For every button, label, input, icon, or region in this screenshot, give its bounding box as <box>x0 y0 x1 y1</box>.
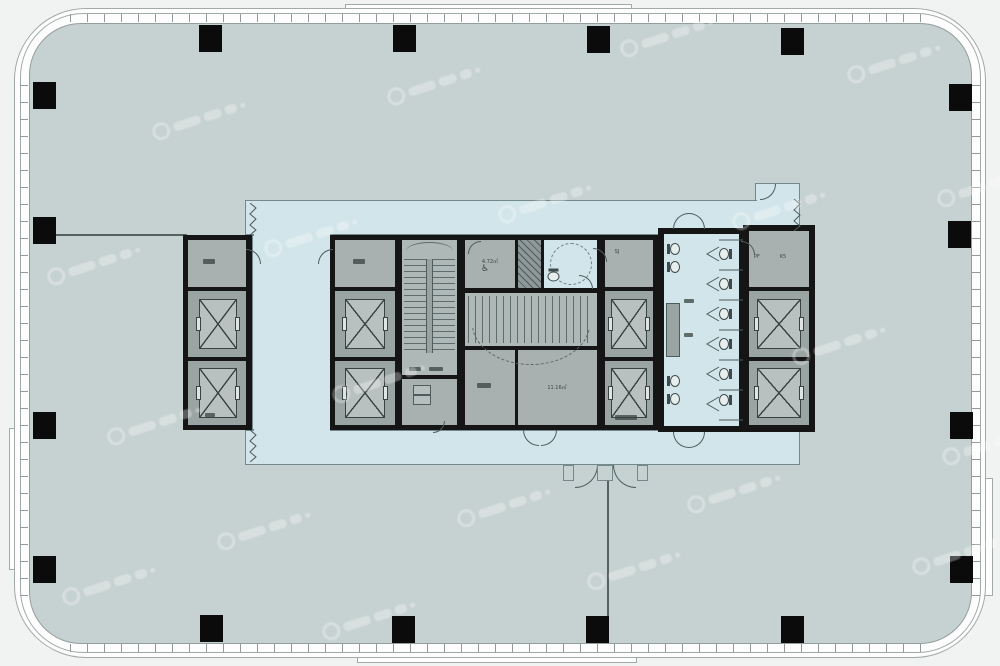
structural-column <box>33 412 56 439</box>
structural-column <box>33 82 56 109</box>
lobby-room <box>188 240 246 287</box>
stair-handrail <box>406 242 453 260</box>
stair-divider <box>426 259 433 353</box>
elevator-car <box>199 368 237 418</box>
structural-column <box>950 556 973 583</box>
floor-plan-canvas: ♿4.72㎡11.16㎡SJPFK5 <box>0 0 1000 666</box>
room-label-k5: K5 <box>775 254 791 262</box>
mullion-ticks-right <box>972 70 980 596</box>
accordion-door-icon <box>248 203 258 235</box>
toilet-fixture <box>548 269 560 282</box>
room-label-sj: SJ <box>609 249 625 257</box>
annotation-smudge <box>429 367 443 371</box>
stall-partitions <box>681 234 743 426</box>
annotation-smudge <box>409 367 421 371</box>
mullion-ticks-bottom <box>70 644 930 652</box>
service-core: ♿4.72㎡11.16㎡SJPFK5 <box>185 183 815 483</box>
elevator-car <box>199 299 237 349</box>
structural-column <box>781 616 804 643</box>
annotation-smudge <box>684 333 693 337</box>
structural-column <box>200 615 223 642</box>
mullion-ticks-left <box>20 70 28 596</box>
corridor-junction <box>254 231 330 239</box>
door-jamb-stub <box>597 465 613 481</box>
structural-column <box>949 84 972 111</box>
mechanical-duct <box>518 240 541 288</box>
elevator-car <box>345 368 385 418</box>
accordion-door-icon <box>792 199 802 231</box>
room-label-pf: PF <box>749 254 765 262</box>
corridor-south <box>245 430 800 465</box>
annotation-smudge <box>615 415 637 420</box>
structural-column <box>586 616 609 643</box>
structural-column <box>392 616 415 643</box>
structural-column <box>33 556 56 583</box>
structural-column <box>781 28 804 55</box>
toilet-fixture <box>667 261 680 273</box>
annotation-smudge <box>205 413 215 417</box>
toilet-fixture <box>667 393 680 405</box>
annotation-smudge <box>477 383 491 388</box>
structural-column <box>948 221 971 248</box>
toilet-fixture <box>667 243 680 255</box>
annotation-smudge <box>203 259 215 264</box>
mullion-ticks-top <box>70 14 930 22</box>
elevator-car <box>611 368 647 418</box>
lobby-room <box>605 240 653 287</box>
structural-column <box>33 217 56 244</box>
structural-column <box>199 25 222 52</box>
elevator-car <box>757 299 801 349</box>
accordion-door-icon <box>248 430 258 462</box>
door-jamb-stub <box>563 465 574 481</box>
elevator-car <box>345 299 385 349</box>
structural-column <box>393 25 416 52</box>
area-label-small: 4.72㎡ <box>473 259 507 267</box>
equipment-box <box>413 385 431 405</box>
elevator-car <box>757 368 801 418</box>
demising-line-west <box>40 234 187 236</box>
area-label-large: 11.16㎡ <box>529 385 585 393</box>
demising-line-south <box>607 481 609 621</box>
annotation-smudge <box>353 259 365 264</box>
corridor-west-leg <box>252 235 332 430</box>
toilet-fixture <box>667 375 680 387</box>
corridor-junction <box>254 426 330 434</box>
structural-column <box>587 26 610 53</box>
annotation-smudge <box>684 299 694 303</box>
washroom-counter <box>666 303 680 357</box>
elevator-car <box>611 299 647 349</box>
door-jamb-stub <box>637 465 648 481</box>
lobby-room <box>335 240 395 287</box>
structural-column <box>950 412 973 439</box>
